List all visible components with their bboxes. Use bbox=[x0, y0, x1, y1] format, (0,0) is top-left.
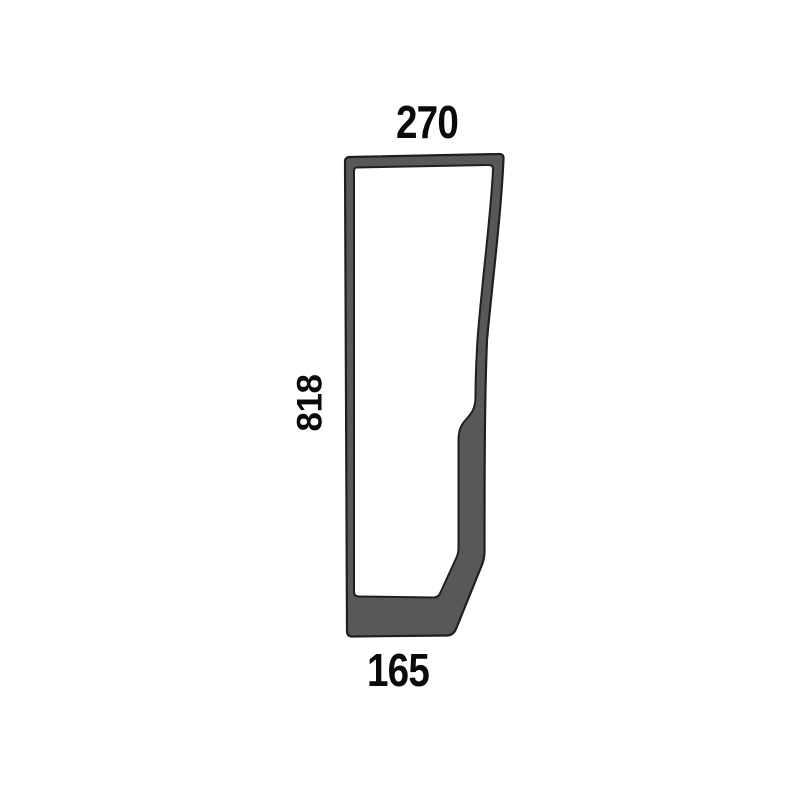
dimension-label-bottom-width: 165 bbox=[367, 647, 429, 693]
diagram-canvas: 270 818 165 bbox=[0, 0, 800, 800]
dimension-label-top-width: 270 bbox=[396, 99, 458, 145]
dimension-label-left-height: 818 bbox=[293, 375, 328, 432]
